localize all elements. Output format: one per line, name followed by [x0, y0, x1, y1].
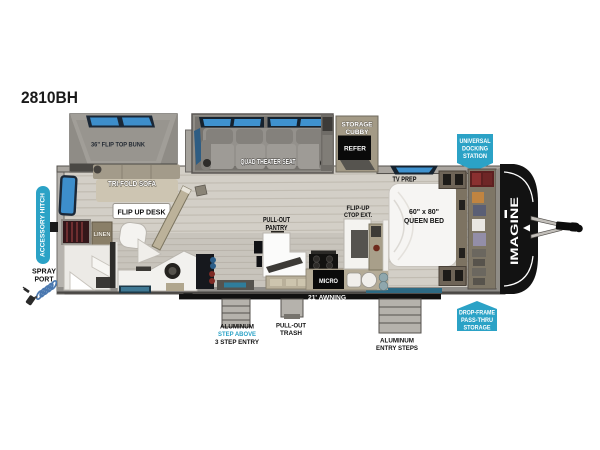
svg-text:CUBBY: CUBBY: [346, 129, 370, 136]
svg-text:LINEN: LINEN: [94, 232, 111, 238]
svg-text:STATION: STATION: [463, 153, 487, 160]
svg-text:ENTRY STEPS: ENTRY STEPS: [376, 345, 418, 352]
svg-text:STORAGE: STORAGE: [342, 122, 374, 129]
svg-text:QUAD THEATER SEAT: QUAD THEATER SEAT: [241, 159, 297, 166]
svg-text:ALUMINUM: ALUMINUM: [380, 338, 414, 345]
svg-text:TRASH: TRASH: [280, 330, 302, 337]
svg-text:3 STEP ENTRY: 3 STEP ENTRY: [215, 339, 259, 346]
svg-text:ALUMINUM: ALUMINUM: [220, 324, 254, 331]
svg-text:PULL-OUT: PULL-OUT: [263, 217, 291, 224]
svg-text:FLIP-UP: FLIP-UP: [347, 205, 370, 212]
svg-text:ACCESSORY HITCH: ACCESSORY HITCH: [40, 192, 47, 257]
svg-text:TRI-FOLD SOFA: TRI-FOLD SOFA: [108, 181, 156, 188]
svg-text:REFER: REFER: [344, 146, 366, 153]
svg-text:PORT: PORT: [35, 275, 54, 284]
svg-text:2810BH: 2810BH: [21, 89, 78, 107]
svg-text:36" FLIP TOP BUNK: 36" FLIP TOP BUNK: [91, 142, 145, 149]
svg-text:STEP ABOVE: STEP ABOVE: [218, 331, 256, 338]
svg-text:TV PREP: TV PREP: [393, 177, 417, 184]
svg-text:DOCKING: DOCKING: [462, 146, 488, 153]
svg-text:UNIVERSAL: UNIVERSAL: [460, 138, 491, 145]
svg-text:FLIP UP DESK: FLIP UP DESK: [118, 208, 167, 217]
svg-text:DROP-FRAME: DROP-FRAME: [459, 310, 496, 317]
svg-text:PANTRY: PANTRY: [266, 225, 288, 232]
svg-text:21' AWNING: 21' AWNING: [308, 294, 346, 301]
svg-text:STORAGE: STORAGE: [464, 325, 492, 332]
svg-text:PULL-OUT: PULL-OUT: [276, 323, 307, 330]
svg-text:QUEEN BED: QUEEN BED: [404, 216, 444, 225]
svg-text:60" x 80": 60" x 80": [409, 207, 439, 216]
svg-text:IMAGINE: IMAGINE: [509, 197, 521, 265]
svg-text:MICRO: MICRO: [319, 278, 338, 285]
svg-text:PASS-THRU: PASS-THRU: [461, 317, 493, 324]
svg-text:CTOP EXT.: CTOP EXT.: [344, 212, 372, 219]
